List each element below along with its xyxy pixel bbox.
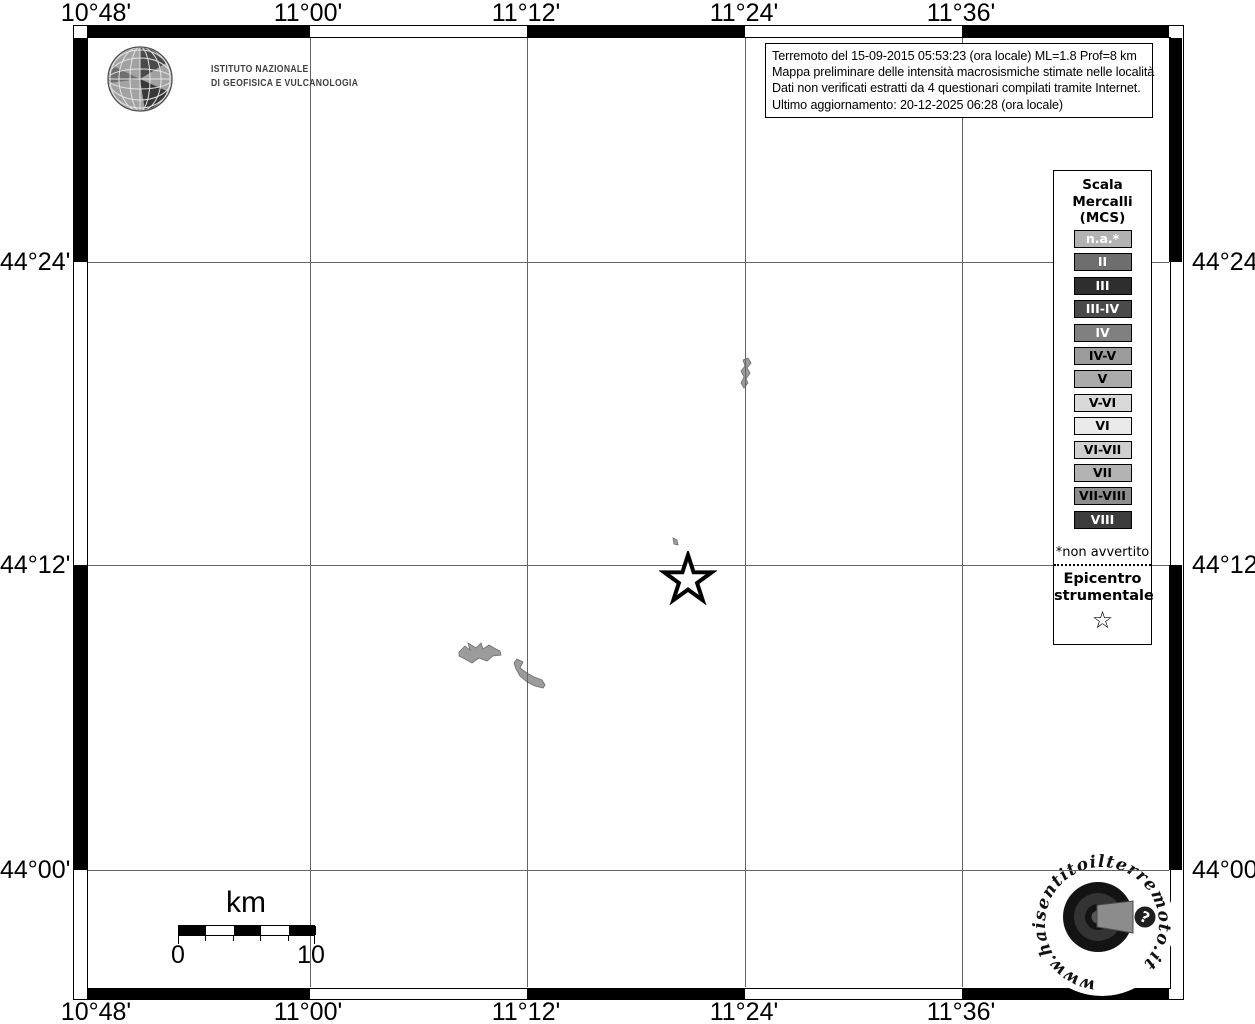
gridline-lat xyxy=(88,262,1169,263)
legend-title: Scala Mercalli (MCS) xyxy=(1054,177,1151,227)
scalebar-tick xyxy=(233,936,234,941)
info-line-data: Dati non verificati estratti da 4 questi… xyxy=(772,80,1146,96)
ingv-logo-line1: ISTITUTO NAZIONALE xyxy=(211,63,358,77)
ingv-logo-text: ISTITUTO NAZIONALE DI GEOFISICA E VULCAN… xyxy=(211,63,358,90)
legend-item-VII: VII xyxy=(1074,464,1132,482)
legend-divider xyxy=(1054,564,1151,566)
frame-band-segment xyxy=(74,565,87,870)
epicenter-star-icon xyxy=(659,551,717,609)
ingv-logo-line2: DI GEOFISICA E VULCANOLOGIA xyxy=(211,77,358,91)
axis-label-lon-top-4: 11°24' xyxy=(689,0,799,26)
legend-item-V-VI: V-VI xyxy=(1074,394,1132,412)
axis-label-lat-left-3: 44°00' xyxy=(0,856,66,884)
axis-label-lon-bottom-2: 11°00' xyxy=(253,999,363,1024)
scalebar-tick xyxy=(260,936,261,941)
info-line-updated: Ultimo aggiornamento: 20-12-2025 06:28 (… xyxy=(772,97,1146,113)
legend-item-IV: IV xyxy=(1074,324,1132,342)
axis-label-lon-bottom-5: 11°36' xyxy=(906,999,1016,1024)
legend-item-IV-V: IV-V xyxy=(1074,347,1132,365)
macroseismic-map: 10°48' 11°00' 11°12' 11°24' 11°36' 10°48… xyxy=(0,0,1255,1024)
axis-label-lat-right-1: 44°24' xyxy=(1192,248,1255,276)
scalebar xyxy=(178,925,315,936)
legend-title-line1: Scala xyxy=(1054,177,1151,194)
axis-label-lon-top-5: 11°36' xyxy=(906,0,1016,26)
frame-band-segment xyxy=(87,988,310,999)
info-line-map: Mappa preliminare delle intensità macros… xyxy=(772,64,1146,80)
axis-label-lon-bottom-4: 11°24' xyxy=(689,999,799,1024)
map-frame-inner xyxy=(87,37,1171,989)
legend-epicenter-label: Epicentro strumentale xyxy=(1054,571,1151,605)
axis-label-lon-top-1: 10°48' xyxy=(41,0,151,26)
axis-label-lon-bottom-1: 10°48' xyxy=(41,999,151,1024)
legend-items: n.a.*IIIIIIII-IVIVIV-VVV-VIVIVI-VIIVIIVI… xyxy=(1054,230,1151,534)
info-line-event: Terremoto del 15-09-2015 05:53:23 (ora l… xyxy=(772,48,1146,64)
legend-item-III: III xyxy=(1074,277,1132,295)
legend-title-line3: (MCS) xyxy=(1054,210,1151,227)
legend-footnote: *non avvertito xyxy=(1054,545,1151,560)
axis-label-lat-right-3: 44°00' xyxy=(1192,856,1255,884)
ingv-globe-icon xyxy=(103,45,177,115)
gridline-lat xyxy=(88,565,1169,566)
gridline-lat xyxy=(88,870,1169,871)
scalebar-end-label: 10 xyxy=(294,941,328,970)
legend-item-V: V xyxy=(1074,370,1132,388)
legend-item-III-IV: III-IV xyxy=(1074,300,1132,318)
legend-item-VIII: VIII xyxy=(1074,511,1132,529)
legend-epicenter-line2: strumentale xyxy=(1054,588,1151,605)
scalebar-unit-label: km xyxy=(196,886,296,920)
legend-item-VI-VII: VI-VII xyxy=(1074,441,1132,459)
scalebar-tick xyxy=(288,936,289,941)
scalebar-tick xyxy=(205,936,206,941)
axis-label-lat-left-2: 44°12' xyxy=(0,551,66,579)
legend-star-icon: ☆ xyxy=(1054,607,1151,633)
axis-label-lat-left-1: 44°24' xyxy=(0,248,66,276)
frame-band-segment xyxy=(87,26,310,37)
frame-band-segment xyxy=(962,26,1169,37)
gridline-lon xyxy=(962,38,963,987)
gridline-lon xyxy=(745,38,746,987)
scalebar-start-label: 0 xyxy=(166,941,190,970)
mcs-legend: Scala Mercalli (MCS) n.a.*IIIIIIII-IVIVI… xyxy=(1053,170,1152,645)
legend-title-line2: Mercalli xyxy=(1054,194,1151,211)
frame-band-segment xyxy=(1169,38,1182,262)
legend-item-n.a.*: n.a.* xyxy=(1074,230,1132,248)
frame-band-segment xyxy=(527,988,745,999)
axis-label-lat-right-2: 44°12' xyxy=(1192,551,1255,579)
legend-item-VII-VIII: VII-VIII xyxy=(1074,487,1132,505)
frame-band-segment xyxy=(527,26,745,37)
legend-item-II: II xyxy=(1074,253,1132,271)
frame-band-segment xyxy=(1169,565,1182,870)
gridline-lon xyxy=(310,38,311,987)
axis-label-lon-bottom-3: 11°12' xyxy=(471,999,581,1024)
haisentito-logo-ring: www.haisentitoilterremoto.it xyxy=(1022,844,1182,1004)
axis-label-lon-top-2: 11°00' xyxy=(253,0,363,26)
gridline-lon xyxy=(527,38,528,987)
axis-label-lon-top-3: 11°12' xyxy=(471,0,581,26)
earthquake-info-box: Terremoto del 15-09-2015 05:53:23 (ora l… xyxy=(765,43,1153,118)
frame-band-segment xyxy=(74,38,87,262)
legend-epicenter-line1: Epicentro xyxy=(1054,571,1151,588)
legend-item-VI: VI xyxy=(1074,417,1132,435)
